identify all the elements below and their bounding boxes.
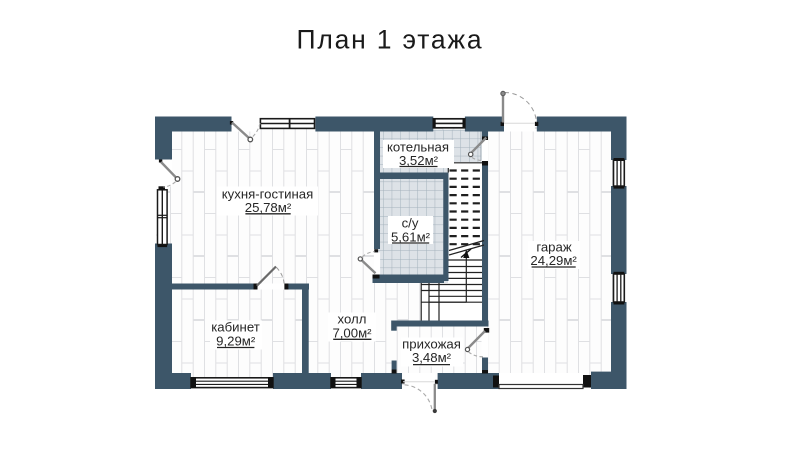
svg-text:План 1 этажа: План 1 этажа — [297, 25, 484, 55]
svg-text:5,61м²: 5,61м² — [391, 229, 431, 244]
svg-text:холл: холл — [338, 311, 367, 326]
svg-text:7,00м²: 7,00м² — [332, 325, 372, 340]
svg-text:3,48м²: 3,48м² — [412, 350, 452, 365]
svg-text:3,52м²: 3,52м² — [399, 153, 439, 168]
svg-text:9,29м²: 9,29м² — [216, 334, 256, 349]
svg-text:24,29м²: 24,29м² — [530, 253, 577, 268]
svg-text:кабинет: кабинет — [211, 320, 260, 335]
svg-text:25,78м²: 25,78м² — [245, 200, 292, 215]
svg-text:с/у: с/у — [402, 215, 419, 230]
